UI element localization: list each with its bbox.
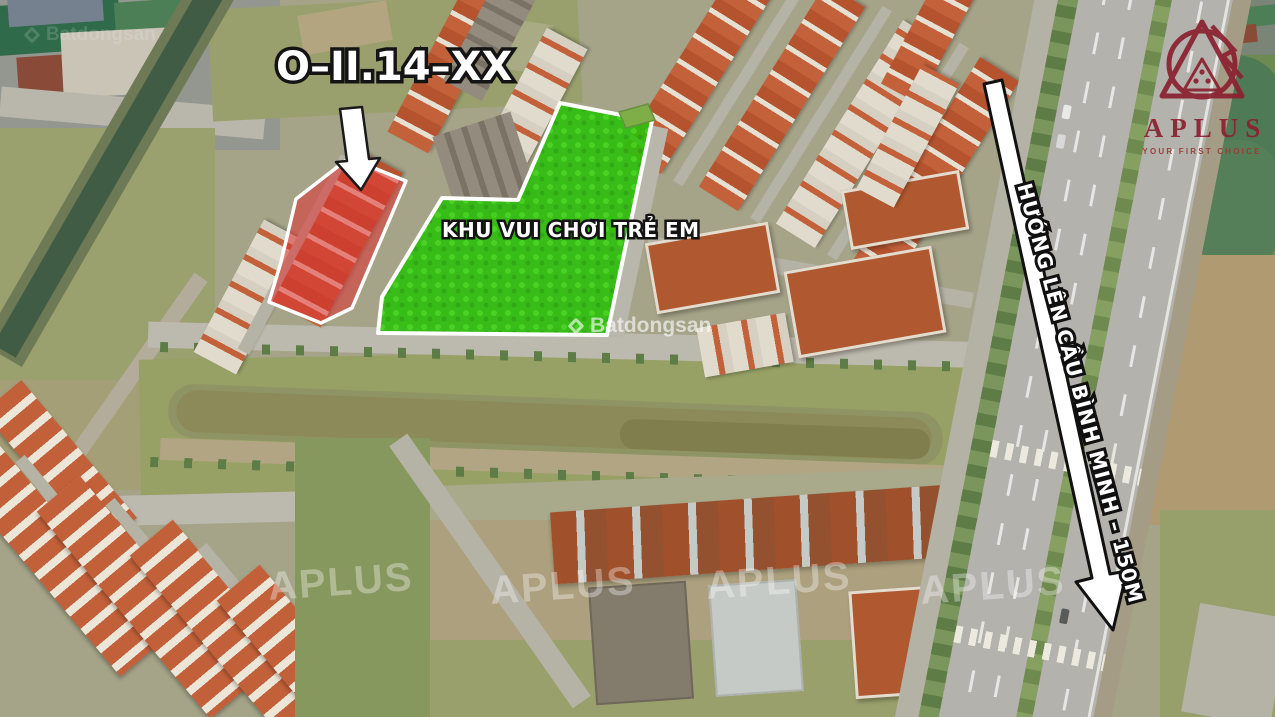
playground-label-text: KHU VUI CHƠI TRẺ EM [442,218,700,242]
diamond-icon [568,318,585,335]
aplus-logo-mark-icon [1150,12,1254,108]
playground-label: KHU VUI CHƠI TRẺ EM KHU VUI CHƠI TRẺ EM [442,218,700,242]
aplus-logo: APLUS YOUR FIRST CHOICE [1126,12,1275,156]
photo-credit-watermark-partial: Batdongsan [26,24,156,46]
aplus-logo-wordmark: APLUS [1126,113,1275,144]
aplus-logo-tagline: YOUR FIRST CHOICE [1126,147,1275,156]
photo-credit-text: Batdongsan [590,314,711,338]
diamond-icon [24,27,41,44]
photo-credit-text: Batdongsan [46,24,156,46]
lot-code-label-text: O–II.14–XX [276,44,512,90]
photo-credit-watermark: Batdongsan [570,314,711,338]
lot-code-label: O–II.14–XX O–II.14–XX [276,44,512,90]
aerial-photo-stage: O–II.14–XX O–II.14–XX KHU VUI CHƠI TRẺ E… [0,0,1275,717]
